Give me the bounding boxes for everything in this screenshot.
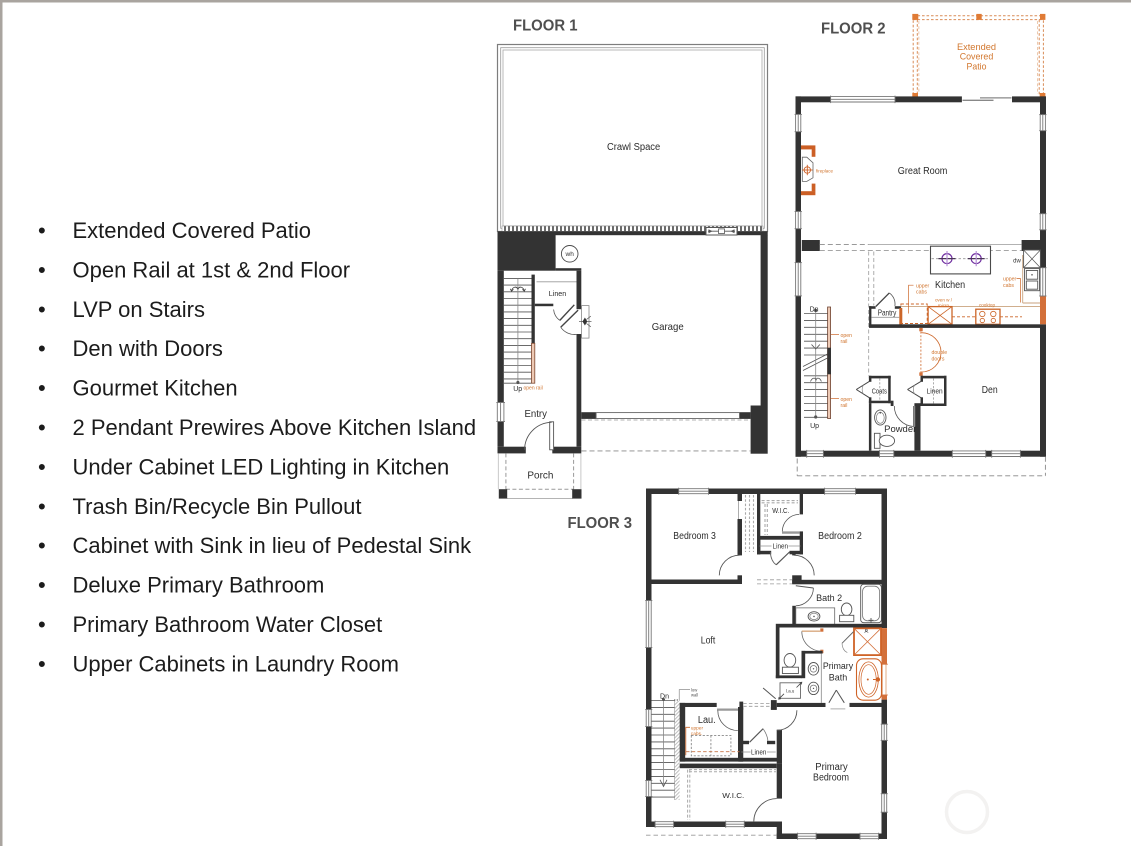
svg-text:Linen: Linen: [773, 543, 789, 550]
svg-text:open: open: [841, 397, 853, 403]
svg-text:•: •: [38, 297, 46, 322]
svg-text:rail: rail: [841, 403, 848, 409]
svg-text:2 Pendant Prewires Above Kitch: 2 Pendant Prewires Above Kitchen Island: [73, 415, 477, 440]
svg-text:cabs: cabs: [1003, 283, 1014, 289]
svg-text:Cabinet with Sink in lieu of P: Cabinet with Sink in lieu of Pedestal Si…: [73, 533, 473, 558]
svg-text:Bath: Bath: [829, 673, 848, 683]
svg-text:Pantry: Pantry: [878, 308, 897, 318]
svg-text:Bedroom 3: Bedroom 3: [673, 531, 716, 542]
svg-text:cabs.: cabs.: [691, 731, 702, 737]
svg-text:Up: Up: [810, 423, 819, 430]
svg-text:LVP on Stairs: LVP on Stairs: [73, 297, 205, 322]
svg-text:Gourmet Kitchen: Gourmet Kitchen: [73, 376, 238, 401]
svg-text:Dn: Dn: [810, 306, 819, 313]
svg-text:fireplace: fireplace: [816, 168, 834, 173]
svg-text:cabs: cabs: [916, 290, 927, 296]
svg-text:•: •: [38, 651, 46, 676]
svg-text:Under Cabinet LED Lighting in: Under Cabinet LED Lighting in Kitchen: [73, 454, 450, 479]
svg-text:•: •: [38, 257, 46, 282]
svg-text:•: •: [38, 336, 46, 361]
svg-text:Linen: Linen: [751, 750, 767, 757]
svg-text:W.I.C.: W.I.C.: [722, 793, 744, 800]
svg-text:upper: upper: [1003, 277, 1017, 283]
svg-text:Entry: Entry: [524, 409, 547, 420]
svg-text:rail: rail: [841, 339, 848, 345]
svg-text:l.a.u: l.a.u: [786, 689, 795, 694]
svg-text:Upper Cabinets in Laundry Room: Upper Cabinets in Laundry Room: [73, 651, 400, 676]
svg-text:doors: doors: [932, 357, 945, 363]
svg-text:•: •: [38, 218, 46, 243]
svg-text:Bath 2: Bath 2: [816, 593, 842, 603]
svg-text:Bedroom 2: Bedroom 2: [818, 531, 862, 542]
svg-text:Primary Bathroom Water Closet: Primary Bathroom Water Closet: [73, 612, 383, 637]
svg-text:Lau.: Lau.: [698, 715, 716, 726]
svg-text:•: •: [38, 454, 46, 479]
svg-text:Open Rail at 1st & 2nd Floor: Open Rail at 1st & 2nd Floor: [73, 257, 351, 282]
svg-text:Porch: Porch: [527, 471, 553, 482]
svg-text:wall: wall: [691, 693, 698, 698]
svg-text:Great Room: Great Room: [898, 166, 948, 177]
svg-text:Linen: Linen: [927, 388, 943, 395]
svg-text:FLOOR 1: FLOOR 1: [513, 17, 578, 34]
svg-text:Kitchen: Kitchen: [935, 280, 965, 291]
svg-text:Primary: Primary: [815, 762, 847, 773]
svg-text:FLOOR 3: FLOOR 3: [568, 515, 633, 532]
svg-text:•: •: [38, 573, 46, 598]
svg-text:Patio: Patio: [967, 61, 987, 72]
svg-text:Coats: Coats: [872, 388, 888, 395]
svg-text:•: •: [38, 376, 46, 401]
svg-text:•: •: [38, 494, 46, 519]
svg-text:Powder: Powder: [884, 424, 916, 435]
svg-text:Trash Bin/Recycle Bin Pullout: Trash Bin/Recycle Bin Pullout: [73, 494, 362, 519]
svg-text:Den: Den: [982, 385, 998, 396]
svg-text:FLOOR 2: FLOOR 2: [821, 21, 886, 38]
svg-text:•: •: [38, 533, 46, 558]
svg-text:wh: wh: [565, 251, 575, 258]
svg-text:Crawl Space: Crawl Space: [607, 142, 661, 153]
svg-text:Garage: Garage: [652, 321, 684, 333]
svg-text:Linen: Linen: [549, 289, 567, 298]
svg-text:upper: upper: [916, 283, 930, 289]
svg-text:double: double: [932, 350, 948, 356]
svg-text:dw: dw: [1013, 259, 1021, 265]
svg-text:micro: micro: [938, 303, 950, 308]
svg-text:upper: upper: [691, 725, 704, 731]
svg-text:•: •: [38, 612, 46, 637]
svg-text:Deluxe Primary Bathroom: Deluxe Primary Bathroom: [73, 573, 325, 598]
svg-text:cooktop: cooktop: [979, 303, 996, 308]
svg-text:Bedroom: Bedroom: [813, 773, 849, 784]
svg-text:Primary: Primary: [823, 661, 854, 671]
svg-text:Dn: Dn: [660, 693, 669, 700]
svg-text:Up: Up: [513, 386, 522, 393]
svg-text:open rail: open rail: [524, 386, 543, 392]
svg-text:Extended Covered Patio: Extended Covered Patio: [73, 218, 312, 243]
svg-text:•: •: [38, 415, 46, 440]
svg-text:Den with Doors: Den with Doors: [73, 336, 223, 361]
svg-text:Loft: Loft: [701, 636, 716, 647]
svg-text:open: open: [841, 333, 853, 339]
svg-text:W.I.C.: W.I.C.: [772, 508, 789, 515]
